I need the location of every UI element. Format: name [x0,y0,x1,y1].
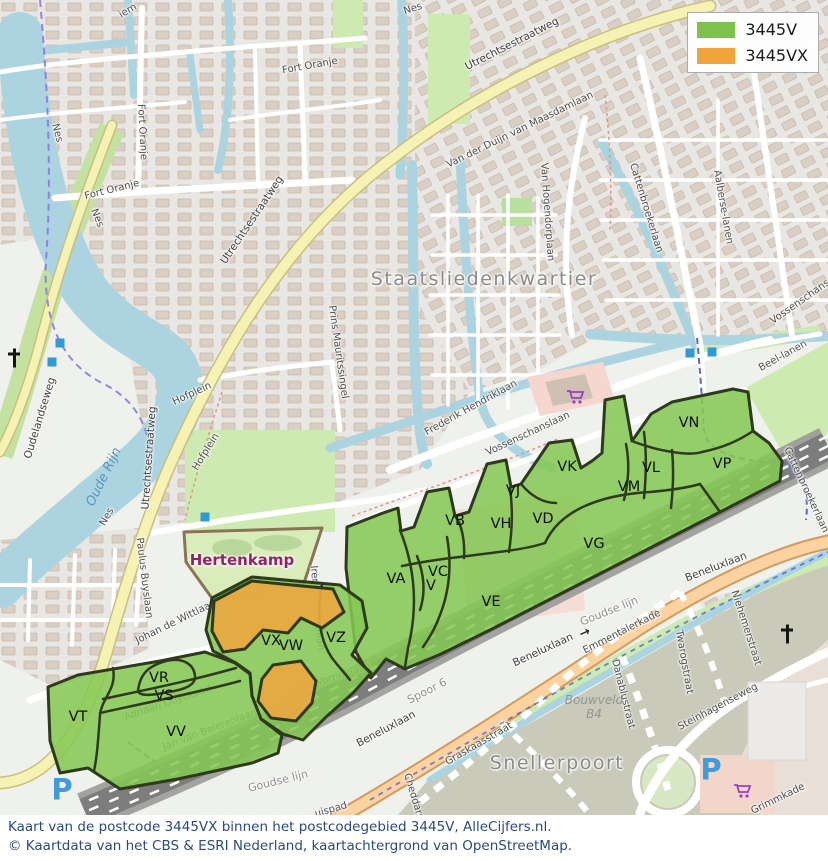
postcode-green-zuidwest [48,652,282,789]
postcode-overlay-svg [0,0,828,815]
legend-row-3445v: 3445V [697,20,808,39]
legend-label-3445v: 3445V [745,20,797,39]
legend-label-3445vx: 3445VX [745,46,808,65]
map-legend: 3445V 3445VX [687,12,819,73]
caption-line-1: Kaart van de postcode 3445VX binnen het … [8,818,820,837]
caption-line-2: © Kaartdata van het CBS & ESRI Nederland… [8,837,820,856]
legend-swatch-orange [697,48,735,64]
map-caption: Kaart van de postcode 3445VX binnen het … [0,815,828,861]
legend-row-3445vx: 3445VX [697,46,808,65]
postcode-map-screenshot: Fort OranjeFort OranjeFort OranjeNesNesN… [0,0,828,861]
map-canvas[interactable]: Fort OranjeFort OranjeFort OranjeNesNesN… [0,0,828,815]
legend-swatch-green [697,22,735,38]
